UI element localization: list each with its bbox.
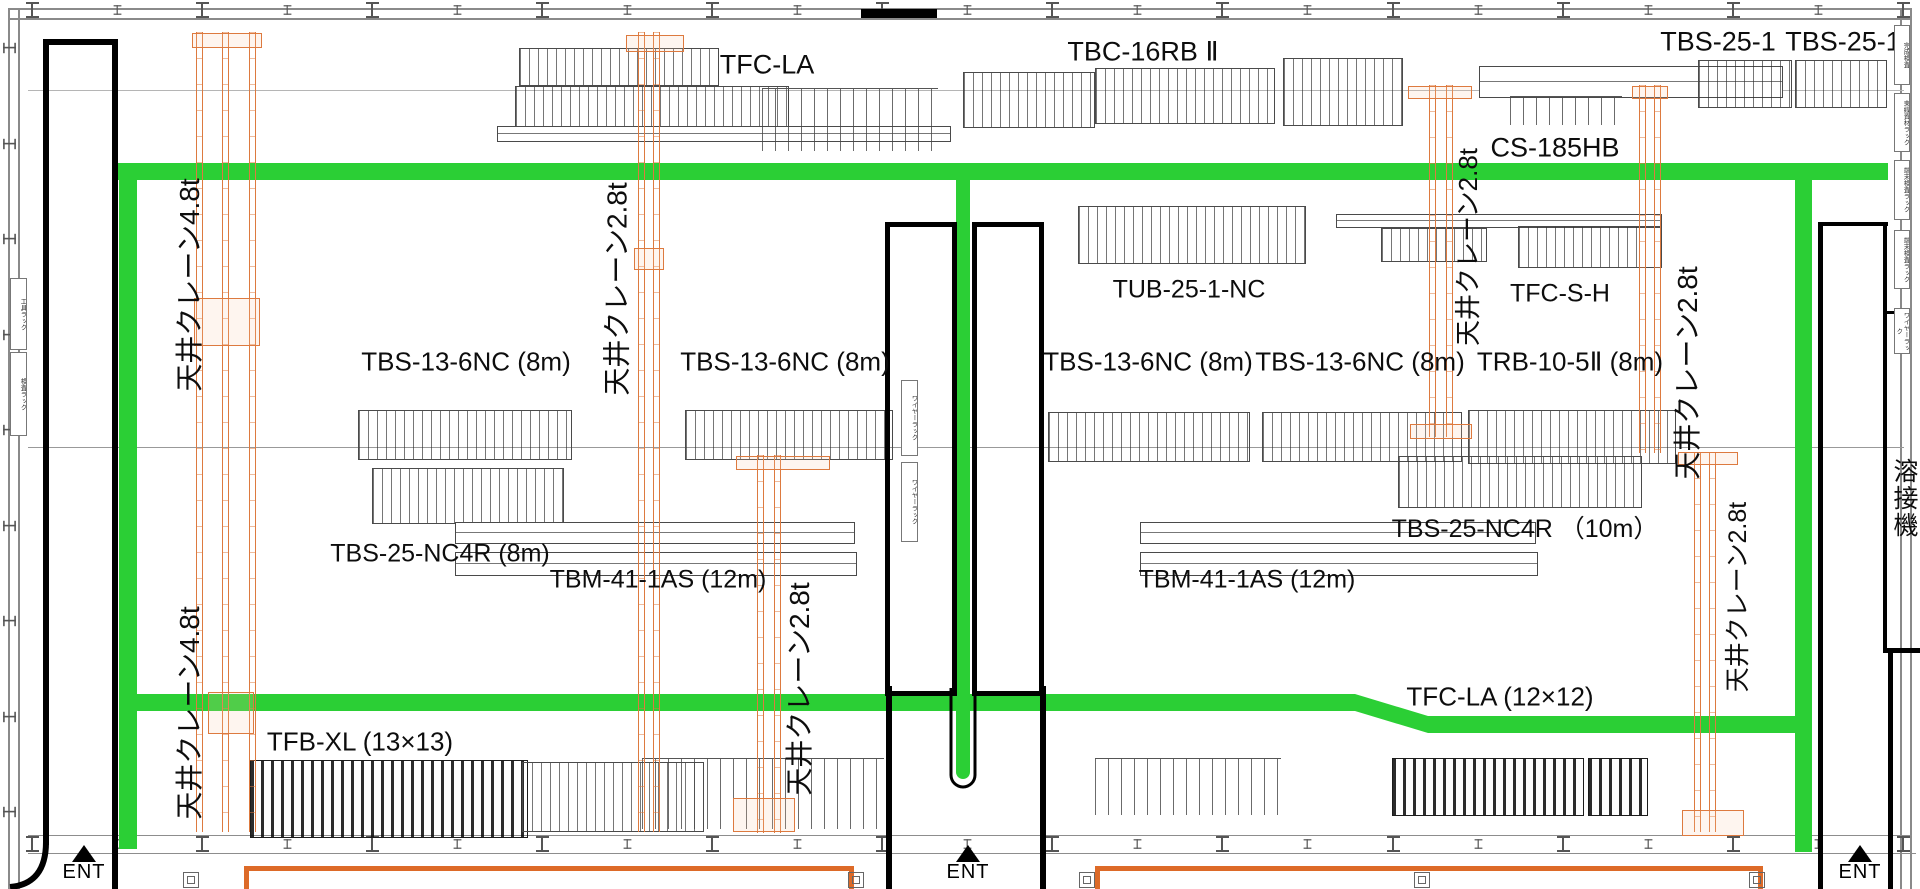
crane-carriage xyxy=(1410,424,1472,439)
right-room-right-wall xyxy=(1883,222,1887,652)
machine-label-tfc-s-h: TFC-S-H xyxy=(1510,280,1610,309)
crane-rail xyxy=(1709,452,1716,832)
machine-tbs-13-6nc-1 xyxy=(358,410,572,460)
entrance-label: ENT xyxy=(56,862,112,882)
machine-label-tbs-13-6nc-4: TBS-13-6NC (8m) xyxy=(1255,347,1464,378)
crane-carriage xyxy=(634,248,664,270)
crane-crossbar xyxy=(1408,86,1472,99)
right-room-left-wall xyxy=(1818,222,1823,889)
machine-label-tfb-xl: TFB-XL (13×13) xyxy=(267,727,453,758)
crane-crossbar xyxy=(192,33,262,48)
machine-tbs-13-6nc-3 xyxy=(1048,412,1250,462)
walkway-top-horizontal xyxy=(118,163,1888,180)
machine-tfb-xl xyxy=(250,760,528,838)
center-room-right xyxy=(972,222,1044,696)
machine-tbs-25-nc4r-10m xyxy=(1398,456,1642,508)
rack-label-inner-1: ワイヤーラック xyxy=(901,380,918,456)
entrance-label: ENT xyxy=(940,862,996,882)
machine-label-tfc-la-bottom: TFC-LA (12×12) xyxy=(1406,682,1593,713)
machine-top-right-group xyxy=(1283,58,1403,126)
right-room-top-wall xyxy=(1818,222,1888,226)
crane-rail xyxy=(1639,85,1646,453)
machine-cs-185hb-teeth xyxy=(1510,96,1622,125)
machine-label-tbs-25-1-a: TBS-25-1 xyxy=(1660,27,1776,58)
entrance-arrow-icon xyxy=(72,845,96,862)
entrance-label: ENT xyxy=(1832,862,1888,882)
machine-label-tbs-25-1-b: TBS-25-1 xyxy=(1785,27,1901,58)
rack-label-inner-2: ワイヤーラック xyxy=(901,462,918,542)
crane-label-upper-left: 天井クレーン4.8t xyxy=(174,129,206,441)
crane-label-upper-right-1: 天井クレーン2.8t xyxy=(1452,122,1484,372)
crane-label-upper-center: 天井クレーン2.8t xyxy=(602,132,634,447)
machine-tbs-13-6nc-2 xyxy=(685,410,893,460)
floor-marker-square xyxy=(1414,872,1430,888)
right-corridor-right-wall xyxy=(1888,651,1893,889)
center-corridor-right-wall xyxy=(1040,686,1046,889)
left-corridor-top-wall xyxy=(43,39,118,45)
machine-label-tbs-25-nc4r-10m: TBS-25-NC4R （10m） xyxy=(1392,509,1659,545)
machine-label-tbs-13-6nc-1: TBS-13-6NC (8m) xyxy=(361,347,570,378)
center-room-left xyxy=(885,222,957,696)
machine-label-tbm-41-left: TBM-41-1AS (12m) xyxy=(550,566,767,595)
machine-tub-25-1-nc xyxy=(1078,206,1306,264)
machine-tbc-16rb2-bed xyxy=(1095,68,1275,124)
entrance-arrow-icon xyxy=(956,845,980,862)
crane-carriage xyxy=(208,692,254,734)
machine-label-tbs-13-6nc-3: TBS-13-6NC (8m) xyxy=(1043,347,1252,378)
machine-tfc-la-bottom-dense-1 xyxy=(1392,758,1584,816)
crane-label-lower-center: 天井クレーン2.8t xyxy=(784,519,816,859)
machine-tbs-25-nc4r-8m xyxy=(372,468,564,524)
crane-crossbar xyxy=(1632,86,1668,99)
machine-tbs-25-1-a xyxy=(1698,60,1792,108)
machine-label-tub-25-1-nc: TUB-25-1-NC xyxy=(1113,276,1266,305)
machine-tfc-la-cooling-bed xyxy=(762,88,938,151)
rack-label-right-4: 端末検査ラック xyxy=(1894,230,1910,289)
walkway-left-vertical xyxy=(119,163,137,849)
entrance-arrow-icon xyxy=(1848,845,1872,862)
crane-bridge xyxy=(736,456,830,470)
floor-marker-square xyxy=(848,872,864,888)
machine-tfc-la-bottom-dense-2 xyxy=(1588,758,1648,816)
machine-label-tbm-41-right: TBM-41-1AS (12m) xyxy=(1139,566,1356,595)
crane-label-upper-right-2: 天井クレーン2.8t xyxy=(1672,208,1704,538)
center-corridor-left-wall xyxy=(886,686,892,889)
entrance-center: ENT xyxy=(940,845,996,882)
floor-marker-square xyxy=(1079,872,1095,888)
walkway-center-vertical xyxy=(956,180,970,779)
machine-tbc-16rb2-unit xyxy=(963,72,1095,128)
entrance-left: ENT xyxy=(56,845,112,882)
crane-label-lower-right: 天井クレーン2.8t xyxy=(1722,477,1754,717)
crane-rail xyxy=(1654,85,1661,453)
machine-tfc-la-frame xyxy=(519,48,719,86)
crane-rail xyxy=(757,455,764,833)
crane-label-lower-left: 天井クレーン4.8t xyxy=(174,548,206,878)
rack-label-left-2: 検査ラック xyxy=(10,352,27,436)
machine-label-cs-185hb: CS-185HB xyxy=(1490,133,1619,164)
rack-label-right-1: 完成検査 xyxy=(1894,25,1910,85)
crane-rail xyxy=(653,32,660,832)
entrance-right: ENT xyxy=(1832,845,1888,882)
rack-label-right-2: 束線資材ラック xyxy=(1894,93,1910,152)
machine-tbs-25-1-b xyxy=(1795,60,1887,108)
left-corridor-curve xyxy=(10,842,46,887)
machine-label-tbs-13-6nc-2: TBS-13-6NC (8m) xyxy=(680,347,889,378)
floor-plan-canvas: TFC-LA TBC-16RB Ⅱ TBS-25-1 TBS-25-1 CS-1… xyxy=(0,0,1920,889)
rack-label-right-5: ワイヤーラック xyxy=(1894,308,1910,354)
crane-rail xyxy=(638,32,645,832)
crane-rail xyxy=(1429,85,1436,437)
machine-label-tfc-la: TFC-LA xyxy=(720,50,815,81)
rack-label-right-3: 端末検査ラック xyxy=(1894,160,1910,220)
top-wall-segment xyxy=(861,9,937,18)
crane-rail xyxy=(774,455,781,833)
machine-label-tbs-25-nc4r-8m: TBS-25-NC4R (8m) xyxy=(330,540,549,569)
crane-crossbar xyxy=(626,35,684,52)
machine-bottom-comb-right xyxy=(1095,758,1281,815)
walkway-right-vertical xyxy=(1795,163,1812,852)
welding-area-label: 溶接機 xyxy=(1886,458,1920,539)
rack-label-left-1: 工具ラック xyxy=(10,278,27,350)
crane-carriage xyxy=(1682,810,1744,836)
machine-label-trb-10-5-2: TRB-10-5Ⅱ (8m) xyxy=(1477,347,1663,378)
left-corridor-right-wall xyxy=(112,39,118,889)
floor-box-left xyxy=(244,866,854,889)
machine-label-tbc-16rb2: TBC-16RB Ⅱ xyxy=(1067,37,1218,68)
left-corridor-left-wall xyxy=(43,39,49,845)
floor-marker-square xyxy=(1749,872,1765,888)
